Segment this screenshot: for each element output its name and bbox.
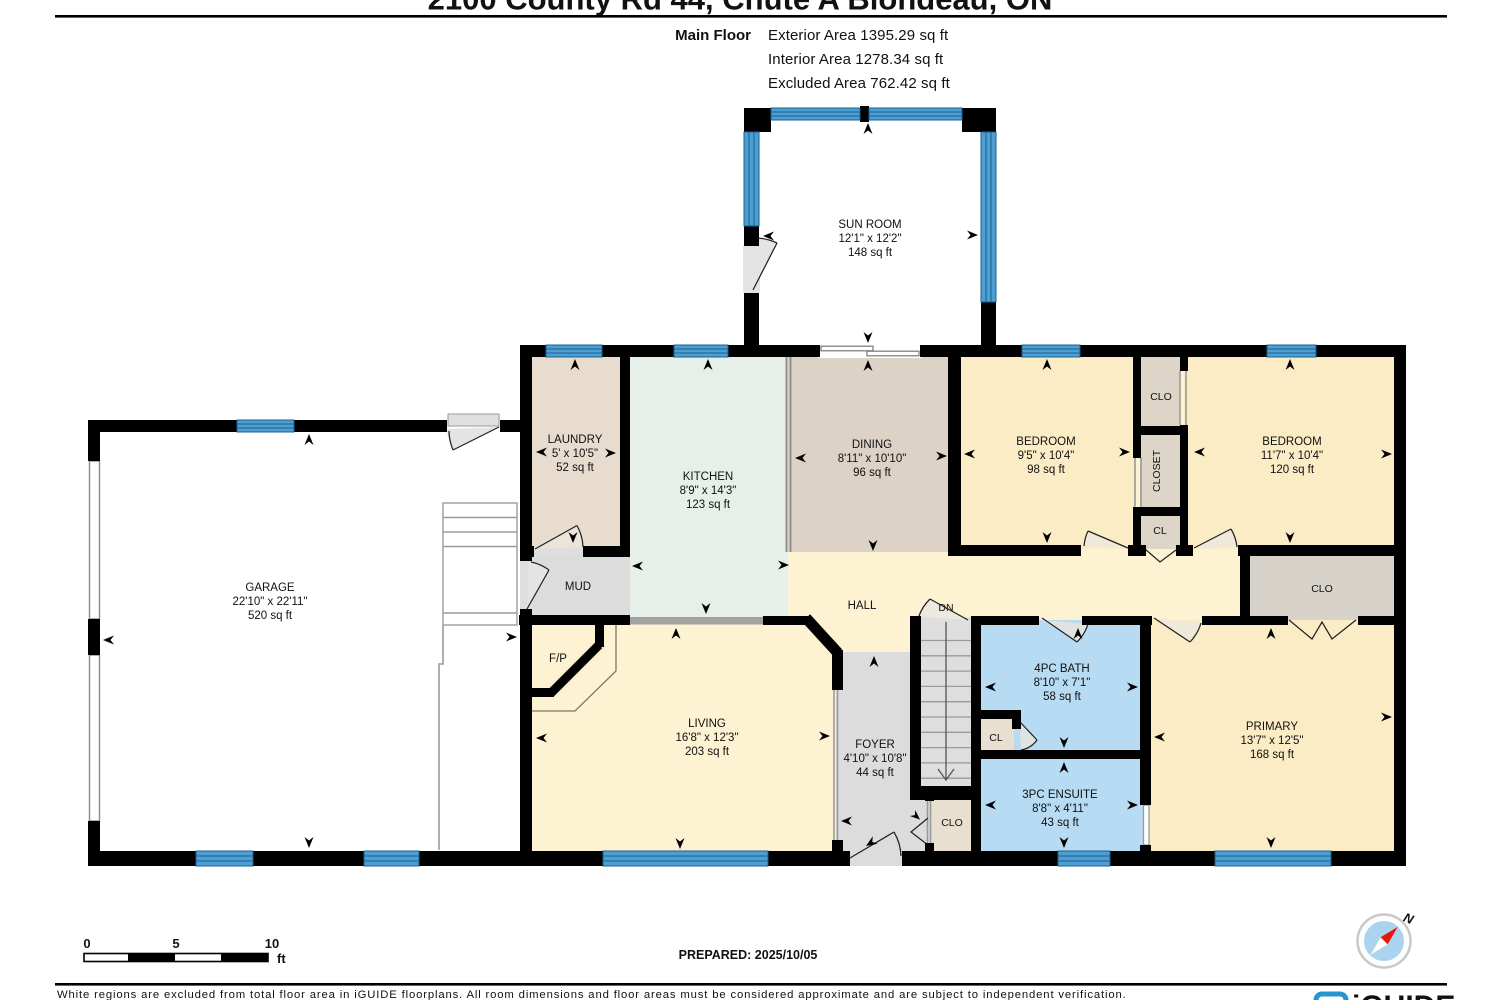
svg-text:F/P: F/P [549,653,567,665]
svg-text:123 sq ft: 123 sq ft [686,499,731,511]
svg-text:CLO: CLO [1150,391,1172,403]
svg-text:52 sq ft: 52 sq ft [556,462,595,474]
svg-text:LAUNDRY: LAUNDRY [548,434,603,446]
svg-text:White regions are excluded fro: White regions are excluded from total fl… [57,989,1127,1000]
svg-text:8'10" x 7'1": 8'10" x 7'1" [1034,677,1091,689]
svg-text:8'11" x 10'10": 8'11" x 10'10" [838,453,907,465]
svg-text:148 sq ft: 148 sq ft [848,247,893,259]
svg-text:44 sq ft: 44 sq ft [856,767,895,779]
svg-text:96 sq ft: 96 sq ft [853,467,892,479]
svg-text:HALL: HALL [848,600,877,612]
svg-text:Exterior Area 1395.29 sq ft: Exterior Area 1395.29 sq ft [768,27,949,44]
svg-text:CL: CL [1153,525,1167,537]
svg-text:FOYER: FOYER [855,739,895,751]
svg-text:13'7" x 12'5": 13'7" x 12'5" [1240,735,1303,747]
svg-text:ft: ft [277,951,286,966]
svg-text:5' x 10'5": 5' x 10'5" [552,448,598,460]
svg-text:4'10" x 10'8": 4'10" x 10'8" [843,753,906,765]
svg-text:168 sq ft: 168 sq ft [1250,749,1295,761]
svg-text:58 sq ft: 58 sq ft [1043,691,1082,703]
svg-text:BEDROOM: BEDROOM [1262,436,1321,448]
svg-text:BEDROOM: BEDROOM [1016,436,1075,448]
svg-text:LIVING: LIVING [688,718,726,730]
svg-text:CLOSET: CLOSET [1151,449,1163,492]
svg-text:520 sq ft: 520 sq ft [248,610,293,622]
svg-text:DINING: DINING [852,439,892,451]
svg-text:KITCHEN: KITCHEN [683,471,733,483]
svg-text:16'8" x 12'3": 16'8" x 12'3" [675,732,738,744]
svg-text:10: 10 [265,936,279,951]
svg-text:11'7" x 10'4": 11'7" x 10'4" [1261,450,1323,462]
svg-text:5: 5 [172,936,179,951]
svg-text:Excluded Area 762.42 sq ft: Excluded Area 762.42 sq ft [768,75,951,92]
svg-text:203 sq ft: 203 sq ft [685,746,730,758]
svg-text:PRIMARY: PRIMARY [1246,721,1299,733]
svg-text:8'8" x 4'11": 8'8" x 4'11" [1032,803,1088,815]
svg-text:CL: CL [989,732,1003,744]
svg-text:CLO: CLO [1311,583,1333,595]
svg-text:4PC BATH: 4PC BATH [1034,663,1089,675]
svg-text:9'5" x 10'4": 9'5" x 10'4" [1018,450,1075,462]
svg-text:12'1" x 12'2": 12'1" x 12'2" [838,233,901,245]
svg-text:CLO: CLO [941,817,963,829]
svg-text:Main Floor: Main Floor [675,27,751,44]
svg-text:PREPARED: 2025/10/05: PREPARED: 2025/10/05 [679,948,818,962]
svg-text:iGUIDE: iGUIDE [1352,990,1455,1000]
svg-text:Interior Area 1278.34 sq ft: Interior Area 1278.34 sq ft [768,51,944,68]
svg-text:8'9" x 14'3": 8'9" x 14'3" [680,485,737,497]
svg-text:22'10" x 22'11": 22'10" x 22'11" [232,596,307,608]
svg-text:98 sq ft: 98 sq ft [1027,464,1066,476]
svg-text:SUN ROOM: SUN ROOM [838,219,901,231]
svg-text:120 sq ft: 120 sq ft [1270,464,1315,476]
svg-text:GARAGE: GARAGE [245,582,295,594]
svg-text:0: 0 [83,936,90,951]
svg-text:2100 County Rd 44, Chute A Blo: 2100 County Rd 44, Chute A Blondeau, ON [428,0,1053,17]
svg-text:MUD: MUD [565,581,591,593]
svg-text:DN: DN [938,602,953,614]
svg-text:3PC ENSUITE: 3PC ENSUITE [1022,789,1098,801]
svg-text:43 sq ft: 43 sq ft [1041,817,1080,829]
